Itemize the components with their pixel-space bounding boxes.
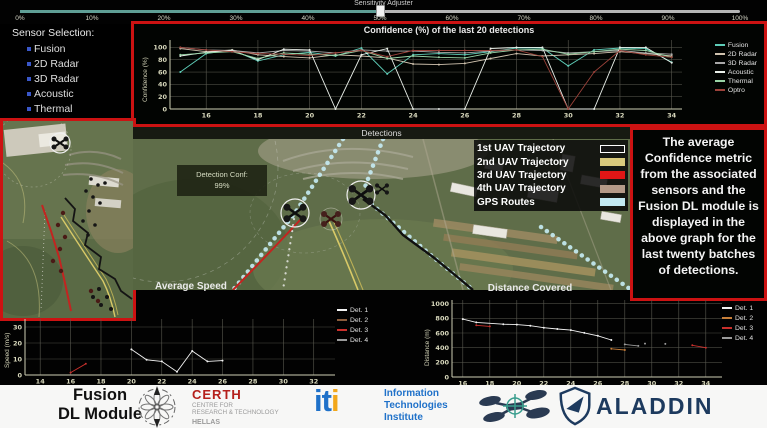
svg-text:16: 16 (202, 112, 212, 120)
legend-item: Det. 1 (722, 304, 753, 312)
map-legend-label: 2nd UAV Trajectory (477, 157, 569, 168)
certh-subtitle-3: HELLAS (192, 419, 279, 426)
svg-text:30: 30 (564, 112, 574, 120)
map-legend-label: 3rd UAV Trajectory (477, 170, 566, 181)
legend-line-swatch (337, 329, 347, 331)
legend-item: Det. 2 (337, 316, 368, 324)
detection-confidence-value: 99% (177, 180, 267, 191)
legend-label: Det. 1 (350, 307, 368, 314)
legend-line-swatch (722, 337, 732, 339)
map-legend-item: 3rd UAV Trajectory (477, 169, 625, 182)
legend-label: Det. 4 (350, 337, 368, 344)
sensor-item-label: 2D Radar (34, 58, 79, 70)
map-legend-label: 1st UAV Trajectory (477, 143, 565, 154)
speed-chart-title: Average Speed (155, 281, 227, 292)
iti-text: Information Technologies Institute (384, 388, 448, 424)
checkbox-icon[interactable] (27, 92, 31, 96)
svg-text:400: 400 (435, 344, 449, 352)
svg-text:32: 32 (615, 112, 624, 120)
legend-item: Thermal (715, 77, 757, 85)
svg-text:20: 20 (13, 339, 23, 347)
legend-label: Thermal (728, 78, 753, 85)
legend-label: Det. 1 (735, 305, 753, 312)
left-map-panel[interactable] (0, 118, 136, 321)
legend-label: Acoustic (728, 69, 754, 76)
legend-label: Det. 4 (735, 335, 753, 342)
map-legend-swatch (600, 158, 625, 166)
aladdin-logo: ALADDIN (556, 386, 714, 426)
legend-item: Det. 3 (722, 324, 753, 332)
map-legend-item: 4th UAV Trajectory (477, 182, 625, 195)
svg-text:20: 20 (305, 112, 315, 120)
detections-map[interactable]: Detections 1st UAV Trajectory2nd UAV Tra… (133, 127, 630, 290)
left-map-image (3, 121, 133, 318)
sensor-item-2d-radar[interactable]: 2D Radar (27, 56, 130, 71)
svg-text:10: 10 (13, 355, 23, 363)
legend-item: Det. 1 (337, 306, 368, 314)
speed-legend: Det. 1Det. 2Det. 3Det. 4 (337, 306, 368, 344)
checkbox-icon[interactable] (27, 47, 31, 51)
aladdin-shield-icon (556, 386, 594, 426)
map-legend-label: 4th UAV Trajectory (477, 183, 566, 194)
svg-text:26: 26 (460, 112, 470, 120)
svg-text:0: 0 (17, 371, 22, 379)
legend-line-swatch (715, 44, 725, 46)
svg-text:20: 20 (158, 93, 168, 101)
sensor-item-label: Acoustic (34, 88, 74, 100)
checkbox-icon[interactable] (27, 77, 31, 81)
detection-confidence-label: Detection Conf: (177, 169, 267, 180)
legend-line-swatch (715, 89, 725, 91)
iti-logo: iti (314, 383, 339, 419)
svg-text:100: 100 (153, 44, 167, 52)
svg-text:24: 24 (409, 112, 419, 120)
drone-crosshair-icon (476, 387, 554, 427)
map-legend-item: 2nd UAV Trajectory (477, 155, 625, 168)
svg-text:34: 34 (667, 112, 677, 120)
svg-text:200: 200 (435, 359, 449, 367)
map-legend-item: GPS Routes (477, 196, 625, 209)
legend-label: Fusion (728, 42, 748, 49)
sensor-selection-panel: Sensor Selection: Fusion2D Radar3D Radar… (0, 24, 130, 118)
footer-bar: Fusion DL Module CERTH CENTRE FOR RESEAR (0, 385, 767, 428)
legend-line-swatch (715, 53, 725, 55)
legend-item: Det. 3 (337, 326, 368, 334)
sensor-item-fusion[interactable]: Fusion (27, 41, 130, 56)
legend-label: 2D Radar (728, 51, 757, 58)
legend-item: 2D Radar (715, 50, 757, 58)
legend-label: Det. 2 (350, 317, 368, 324)
certh-text: CERTH CENTRE FOR RESEARCH & TECHNOLOGY H… (192, 388, 279, 426)
sensor-item-acoustic[interactable]: Acoustic (27, 86, 130, 101)
certh-name: CERTH (192, 388, 279, 401)
legend-label: Det. 2 (735, 315, 753, 322)
svg-text:600: 600 (435, 329, 449, 337)
legend-line-swatch (722, 317, 732, 319)
sensor-item-thermal[interactable]: Thermal (27, 101, 130, 116)
legend-item: Optro (715, 86, 757, 94)
confidence-chart: 02040608010016182022242628303234 (140, 36, 760, 122)
dashboard: Sensitivity Adjuster 0%10%20%30%40%50%60… (0, 0, 767, 428)
legend-label: 3D Radar (728, 60, 757, 67)
certh-subtitle-2: RESEARCH & TECHNOLOGY (192, 410, 279, 416)
confidence-chart-panel: Confidence (%) of the last 20 detections… (131, 21, 767, 127)
aladdin-name: ALADDIN (596, 393, 714, 420)
legend-line-swatch (715, 62, 725, 64)
svg-text:80: 80 (158, 56, 168, 64)
sensor-item-3d-radar[interactable]: 3D Radar (27, 71, 130, 86)
slider-tick-label: 0% (15, 15, 24, 22)
legend-item: Fusion (715, 41, 757, 49)
svg-text:0: 0 (444, 373, 449, 381)
confidence-legend: Fusion2D Radar3D RadarAcousticThermalOpt… (715, 41, 757, 94)
map-legend-swatch (600, 185, 625, 193)
distance-legend: Det. 1Det. 2Det. 3Det. 4 (722, 304, 753, 342)
checkbox-icon[interactable] (27, 107, 31, 111)
legend-label: Optro (728, 87, 745, 94)
checkbox-icon[interactable] (27, 62, 31, 66)
svg-text:18: 18 (253, 112, 263, 120)
legend-item: Det. 2 (722, 314, 753, 322)
distance-chart-title: Distance Covered (440, 283, 620, 294)
map-legend-label: GPS Routes (477, 197, 535, 208)
legend-line-swatch (715, 80, 725, 82)
distance-chart: 0200400600800100016182022242628303234 (430, 296, 730, 391)
map-legend-swatch (600, 198, 625, 206)
speed-chart: 010203014161820222426283032 (0, 318, 340, 386)
info-box: The average Confidence metric from the a… (630, 127, 767, 301)
legend-label: Det. 3 (735, 325, 753, 332)
svg-text:1000: 1000 (431, 300, 450, 308)
legend-line-swatch (722, 327, 732, 329)
legend-line-swatch (722, 307, 732, 309)
sensor-selection-title: Sensor Selection: (12, 27, 130, 39)
certh-subtitle-1: CENTRE FOR (192, 403, 279, 409)
sensor-item-label: Fusion (34, 43, 66, 55)
sensor-item-label: Thermal (34, 103, 73, 115)
map-legend-swatch (600, 145, 625, 153)
certh-logo-icon (136, 386, 178, 428)
sensor-item-label: 3D Radar (34, 73, 79, 85)
legend-line-swatch (715, 71, 725, 73)
svg-text:28: 28 (512, 112, 522, 120)
svg-text:30: 30 (13, 323, 23, 331)
info-box-text: The average Confidence metric from the a… (633, 130, 764, 284)
svg-text:60: 60 (158, 68, 168, 76)
map-legend-item: 1st UAV Trajectory (477, 142, 625, 155)
svg-text:22: 22 (357, 112, 366, 120)
svg-text:0: 0 (162, 105, 167, 113)
map-legend: 1st UAV Trajectory2nd UAV Trajectory3rd … (474, 140, 628, 211)
legend-line-swatch (337, 319, 347, 321)
legend-label: Det. 3 (350, 327, 368, 334)
legend-item: Det. 4 (722, 334, 753, 342)
confidence-chart-title: Confidence (%) of the last 20 detections (134, 25, 764, 35)
slider-tick-label: 10% (85, 15, 98, 22)
svg-text:40: 40 (158, 81, 168, 89)
legend-item: 3D Radar (715, 59, 757, 67)
detection-confidence-box: Detection Conf: 99% (177, 165, 267, 196)
svg-text:800: 800 (435, 315, 449, 323)
legend-line-swatch (337, 309, 347, 311)
legend-line-swatch (337, 339, 347, 341)
map-legend-swatch (600, 171, 625, 179)
sensitivity-slider-fill (20, 10, 380, 13)
detections-title: Detections (133, 127, 630, 139)
legend-item: Acoustic (715, 68, 757, 76)
sensitivity-slider-track[interactable] (20, 10, 740, 13)
legend-item: Det. 4 (337, 336, 368, 344)
